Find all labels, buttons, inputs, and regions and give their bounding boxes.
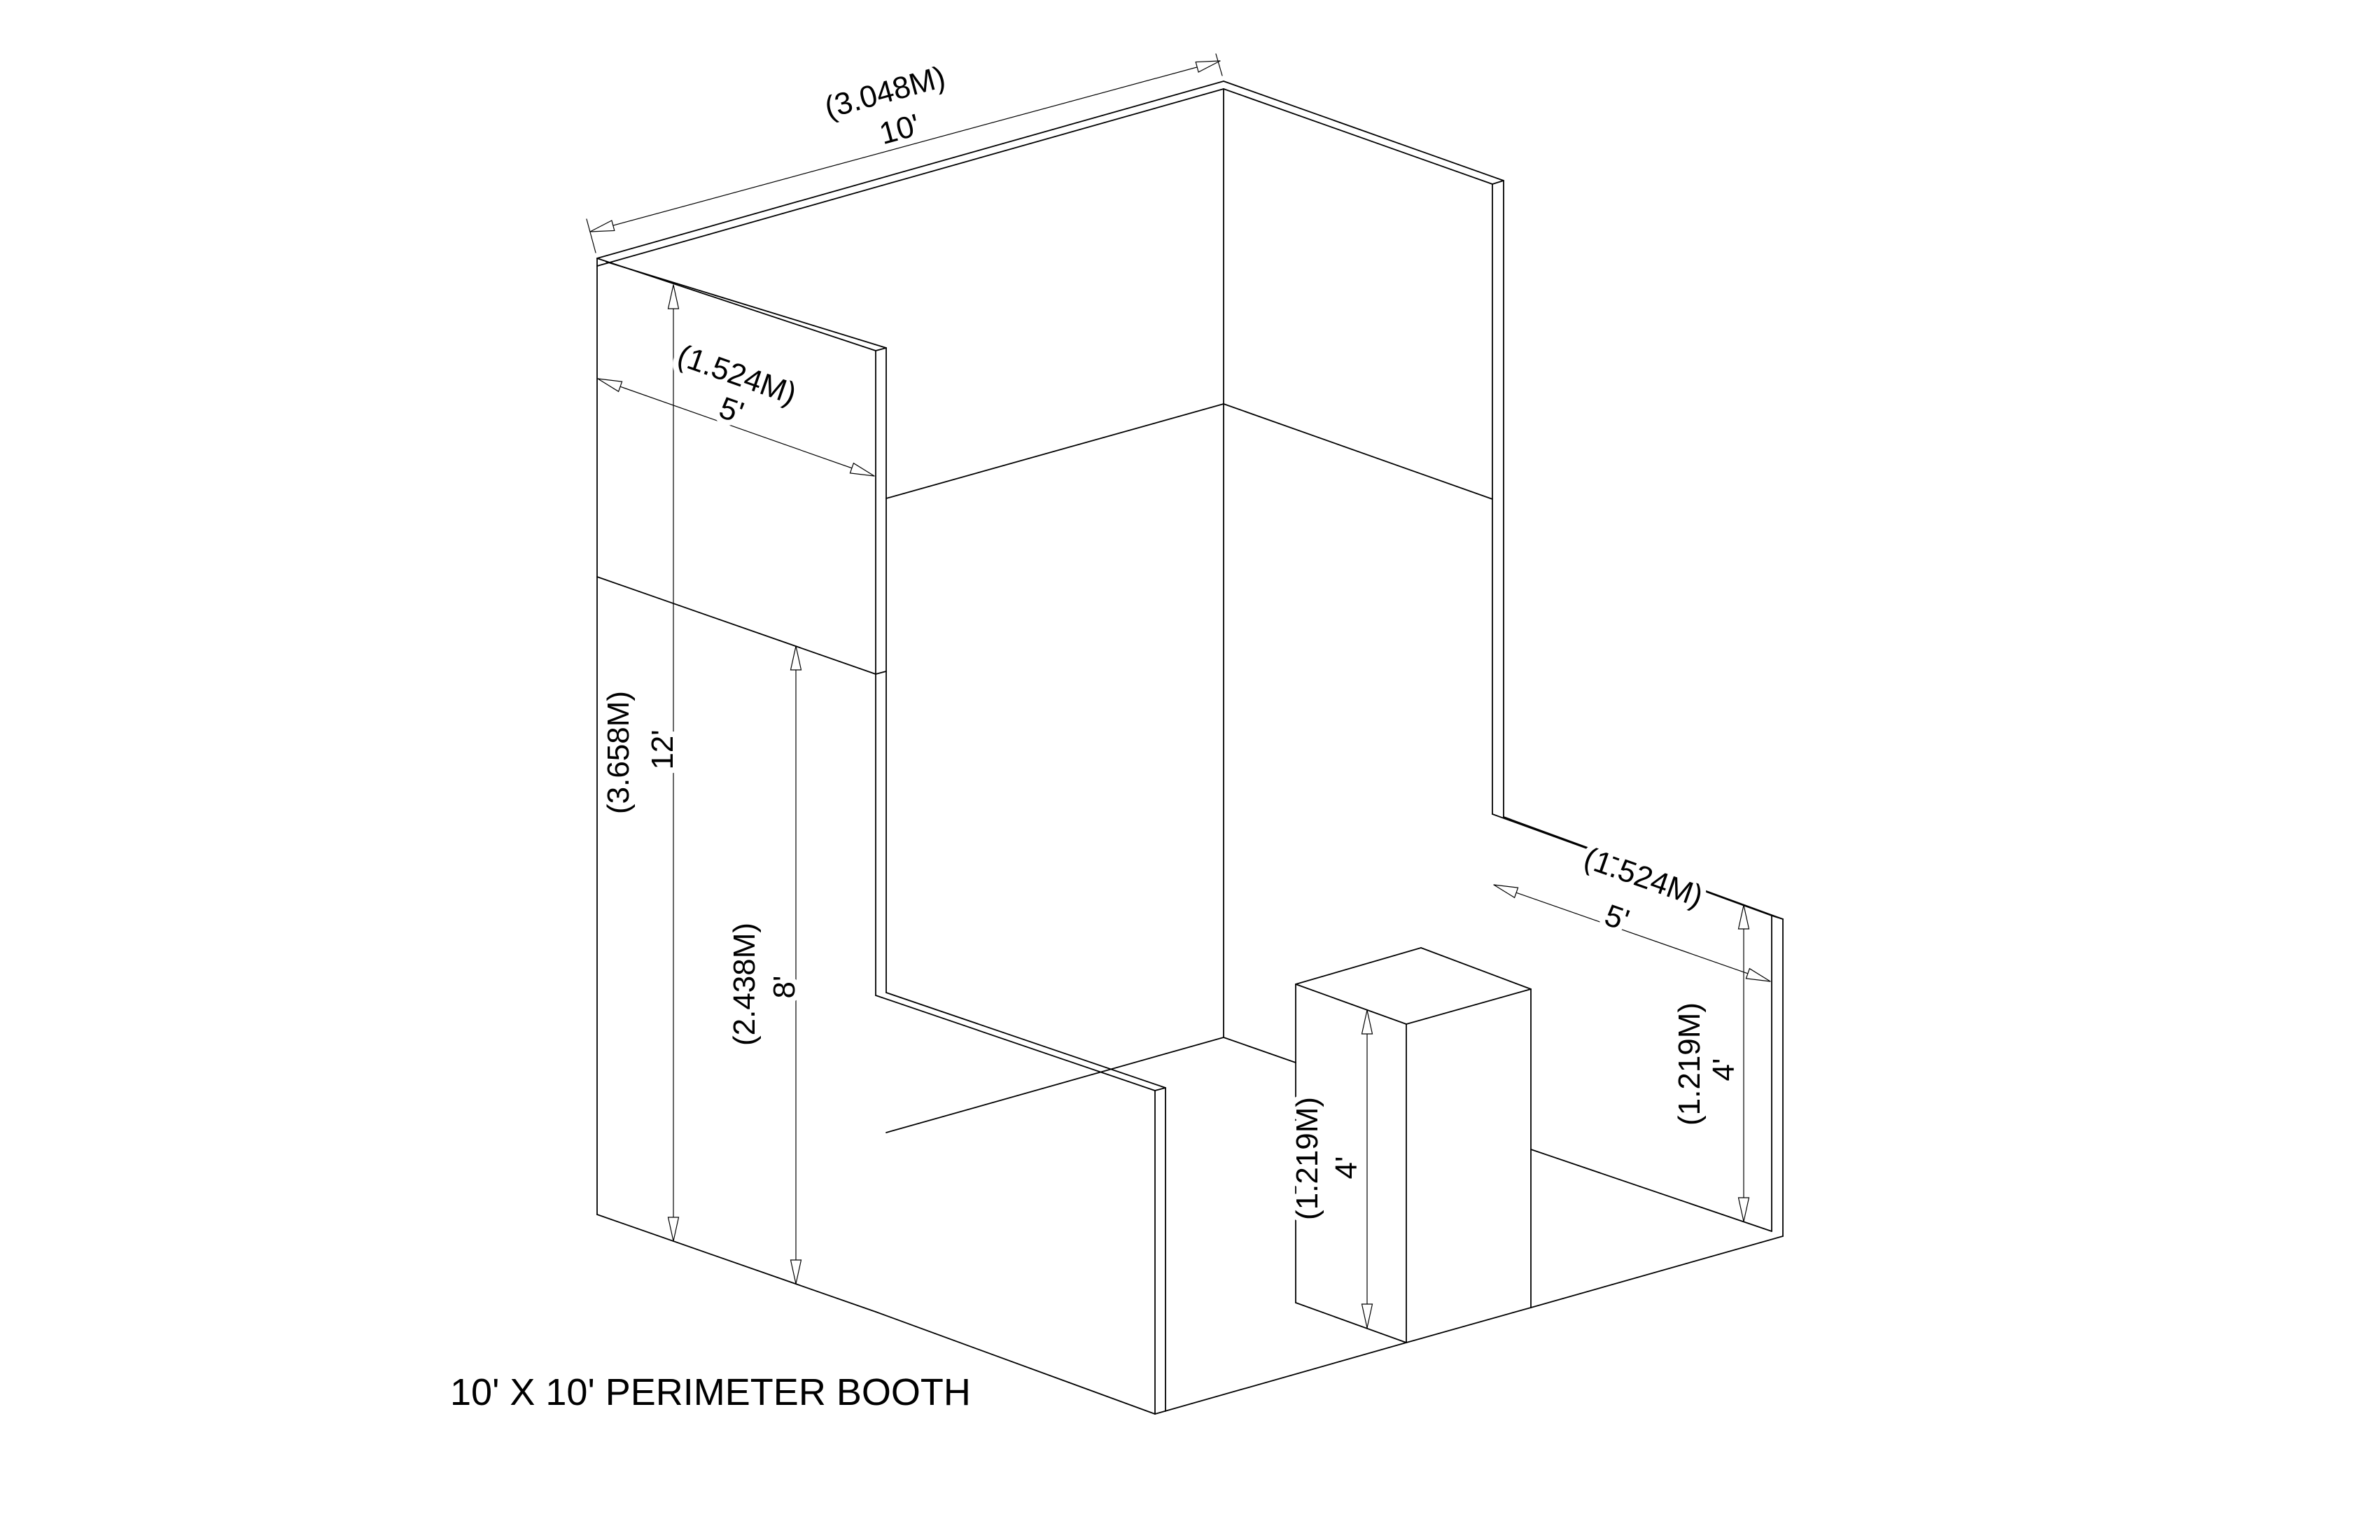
dim-label-pedestal-height-imperial: 4': [1329, 1156, 1364, 1179]
booth-isometric-drawing: (3.048M)10'(1.524M)5'(3.658M)12'(2.438M)…: [0, 0, 2380, 1540]
dim-label-overall-height-metric: (3.658M): [601, 691, 636, 814]
dim-label-pedestal-height-metric: (1.219M): [1290, 1097, 1324, 1220]
dim-label-right-wing-height-metric: (1.219M): [1672, 1002, 1707, 1126]
drawing-title: 10' X 10' PERIMETER BOOTH: [450, 1371, 971, 1413]
dim-label-right-wing-height-imperial: 4': [1707, 1058, 1741, 1081]
dim-label-overall-height-imperial: 12': [645, 729, 680, 769]
dim-label-rear-panel-height-metric: (2.438M): [727, 923, 762, 1046]
booth-drawing-page: (3.048M)10'(1.524M)5'(3.658M)12'(2.438M)…: [0, 0, 2380, 1540]
paper-background: [0, 0, 2380, 1540]
dim-label-rear-panel-height-imperial: 8': [767, 976, 801, 999]
